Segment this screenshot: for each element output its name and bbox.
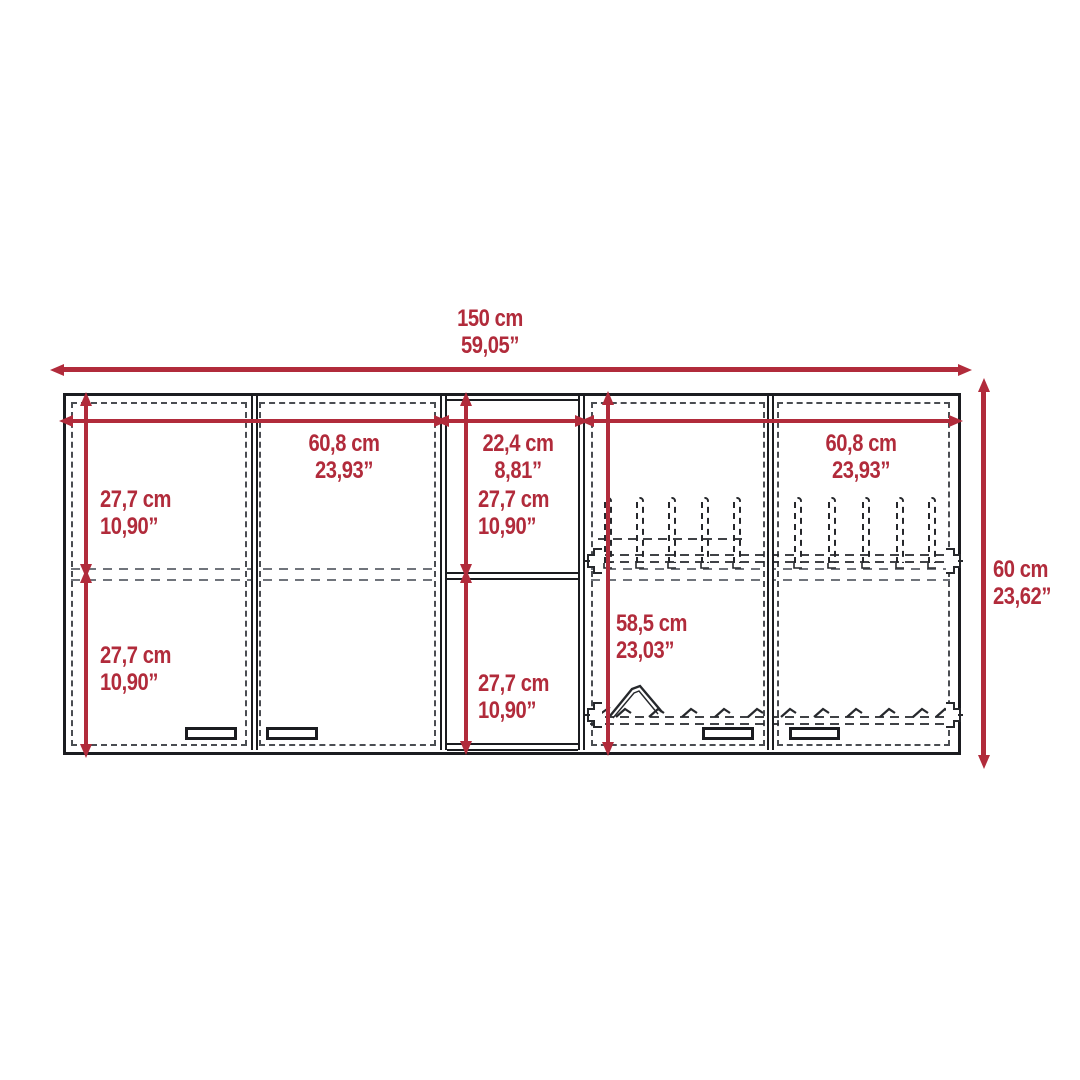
dim-value-cm: 60 cm <box>993 556 1051 583</box>
dim-center-lower-height: 27,7 cm 10,90” <box>478 670 549 724</box>
left-upper-height-arrow <box>84 404 88 566</box>
dim-value-in: 23,93” <box>308 457 379 484</box>
dim-right-width: 60,8 cm 23,93” <box>825 430 896 484</box>
overall-height-arrow <box>981 390 986 757</box>
dimension-diagram-page: { "colors": { "dimension_red": "#b12b3b"… <box>0 0 1080 1080</box>
left-doors-divider <box>251 396 258 750</box>
right-door-2-handle <box>789 727 840 740</box>
dim-overall-height: 60 cm 23,62” <box>993 556 1051 610</box>
overall-width-arrow <box>62 367 960 372</box>
left-width-arrow <box>71 419 436 423</box>
dim-left-width: 60,8 cm 23,93” <box>308 430 379 484</box>
dim-value-in: 23,03” <box>616 637 687 664</box>
dim-value-cm: 150 cm <box>457 305 523 332</box>
dim-value-in: 10,90” <box>478 513 549 540</box>
dim-value-in: 23,62” <box>993 583 1051 610</box>
left-lower-height-arrow <box>84 581 88 746</box>
dim-left-upper-height: 27,7 cm 10,90” <box>100 486 171 540</box>
left-door-1-handle <box>185 727 237 740</box>
dim-left-lower-height: 27,7 cm 10,90” <box>100 642 171 696</box>
right-width-arrow <box>592 419 951 423</box>
dim-right-interior-height: 58,5 cm 23,03” <box>616 610 687 664</box>
dim-value-cm: 27,7 cm <box>478 670 549 697</box>
dim-center-width: 22,4 cm 8,81” <box>482 430 553 484</box>
dim-value-in: 10,90” <box>100 513 171 540</box>
right-interior-height-arrow <box>606 403 610 744</box>
dim-value-cm: 27,7 cm <box>100 642 171 669</box>
dim-value-cm: 27,7 cm <box>100 486 171 513</box>
center-lower-height-arrow <box>464 581 468 743</box>
dim-overall-width: 150 cm 59,05” <box>457 305 523 359</box>
dim-value-in: 8,81” <box>482 457 553 484</box>
dim-value-cm: 58,5 cm <box>616 610 687 637</box>
center-box-right-wall <box>578 396 585 750</box>
dim-value-in: 23,93” <box>825 457 896 484</box>
dim-value-in: 10,90” <box>100 669 171 696</box>
left-door-2-handle <box>266 727 318 740</box>
center-upper-height-arrow <box>464 404 468 566</box>
dim-value-in: 10,90” <box>478 697 549 724</box>
dim-value-cm: 60,8 cm <box>825 430 896 457</box>
dim-center-upper-height: 27,7 cm 10,90” <box>478 486 549 540</box>
right-door-1-handle <box>702 727 754 740</box>
dim-value-cm: 22,4 cm <box>482 430 553 457</box>
center-box-left-wall <box>440 396 447 750</box>
dim-value-in: 59,05” <box>457 332 523 359</box>
dim-value-cm: 27,7 cm <box>478 486 549 513</box>
dim-value-cm: 60,8 cm <box>308 430 379 457</box>
right-doors-divider <box>767 396 774 750</box>
